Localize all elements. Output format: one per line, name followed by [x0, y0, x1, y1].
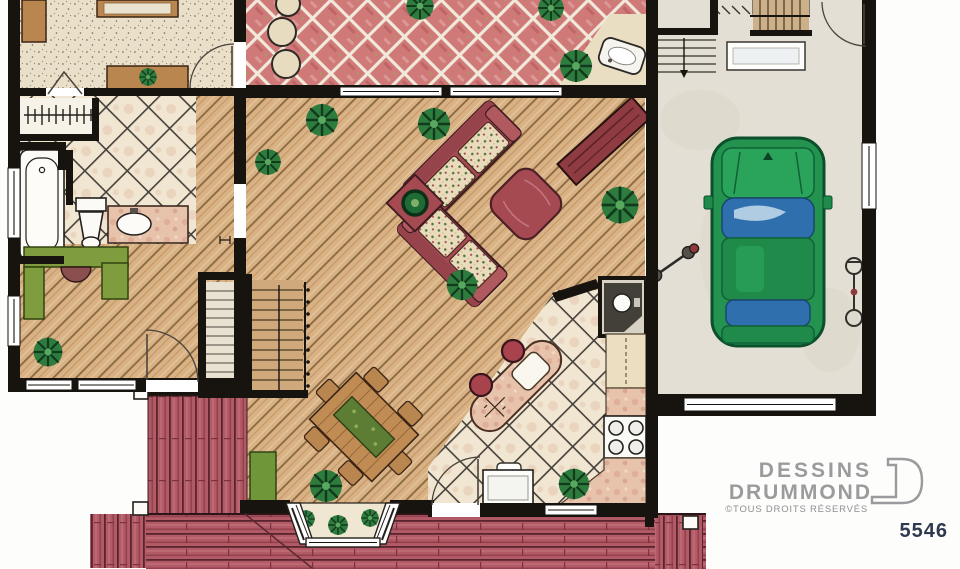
floor-plan: DESSINS DRUMMOND ©TOUS DROITS RÉSERVÉS 5… — [0, 0, 960, 569]
bar-stool — [502, 340, 524, 362]
potted-plant — [328, 515, 348, 535]
stepping-stone — [268, 18, 296, 46]
deck-post — [133, 502, 148, 515]
floor-plan-image: DESSINS DRUMMOND ©TOUS DROITS RÉSERVÉS 5… — [0, 0, 960, 569]
basement-stairs — [750, 0, 810, 31]
car-trunk — [722, 326, 814, 343]
toilet-bowl — [79, 212, 103, 240]
stair-wall — [198, 390, 308, 398]
patio-wall — [246, 85, 648, 98]
garage-kitchen-wall — [646, 0, 658, 518]
garage-stair-wall — [710, 0, 718, 34]
desk-cabinet — [102, 263, 128, 299]
potted-plant — [34, 338, 63, 367]
headboard-panel — [104, 3, 171, 14]
potted-plant — [139, 68, 157, 86]
door-opening — [146, 380, 198, 392]
brand-name-line1: DESSINS — [759, 459, 872, 482]
toilet-tank — [76, 198, 106, 211]
potted-plant — [361, 509, 379, 527]
potted-plant — [310, 470, 342, 502]
potted-plant — [602, 187, 639, 224]
door-opening — [432, 503, 480, 517]
hall-opening — [234, 184, 246, 238]
stair-wall — [198, 278, 206, 394]
car — [704, 138, 832, 346]
appliance-panel — [488, 476, 528, 500]
brand-name-line2: DRUMMOND — [729, 481, 872, 504]
stair-spine-wall — [238, 274, 252, 396]
bath-wall — [58, 142, 66, 170]
faucet — [130, 208, 138, 213]
counter-marble — [606, 388, 646, 416]
potted-plant — [559, 469, 589, 499]
stepping-stone — [272, 50, 300, 78]
closet-wall — [20, 134, 99, 141]
deck-post — [683, 516, 698, 529]
car-rear-window — [726, 300, 810, 326]
closet-wall — [92, 98, 99, 141]
workbench-top — [733, 48, 799, 64]
desk-return — [24, 267, 44, 319]
bathtub-basin — [26, 158, 58, 251]
bar-stool — [470, 374, 492, 396]
potted-plant — [306, 104, 338, 136]
deck-bottom-planks — [146, 514, 706, 569]
garage-stair-wall — [648, 28, 718, 35]
stair-up-flight — [252, 280, 303, 392]
stepping-stone — [276, 0, 300, 16]
car-mirror — [823, 196, 832, 209]
bench — [250, 452, 276, 508]
potted-plant — [255, 149, 281, 175]
bay-window — [286, 503, 400, 547]
potted-plant — [447, 270, 477, 300]
dresser — [22, 0, 46, 42]
corner-sink — [613, 294, 631, 312]
plan-number: 5546 — [900, 520, 949, 542]
dining-front-wall — [240, 500, 290, 513]
stair-balusters — [306, 288, 310, 388]
rights-text: ©TOUS DROITS RÉSERVÉS — [725, 504, 868, 515]
door-opening — [234, 42, 246, 88]
bedroom-wall — [8, 88, 246, 96]
bath-wall — [14, 256, 64, 264]
bath-partition — [66, 150, 73, 205]
potted-plant — [560, 50, 592, 82]
deck-left-planks — [90, 514, 148, 568]
faucet — [634, 298, 640, 307]
car-roof — [722, 238, 814, 300]
vanity-sink — [117, 213, 151, 235]
potted-plant — [418, 108, 450, 140]
deck-vertical-planks — [148, 396, 247, 516]
potted-plant — [538, 0, 564, 21]
car-mirror — [704, 196, 713, 209]
garage-stair-wall — [750, 30, 812, 36]
